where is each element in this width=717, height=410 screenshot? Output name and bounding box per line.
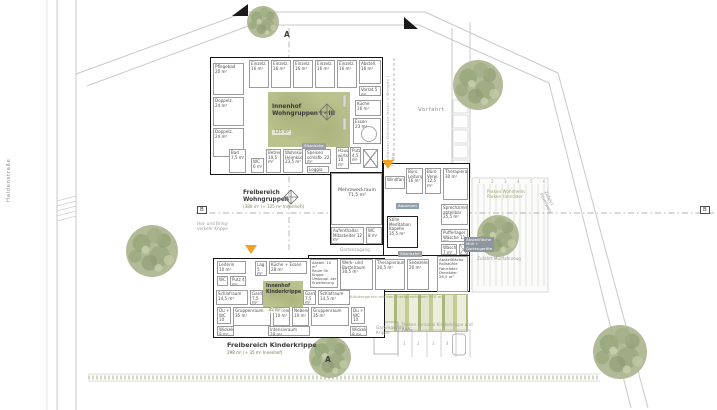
stall-number: 1 bbox=[403, 341, 406, 346]
floorplan-room: Wickeln 8 m² bbox=[350, 326, 367, 336]
floorplan-room: Abstellfläche Rollstühle Fahrräder Dreir… bbox=[437, 256, 468, 292]
stall-number: 4 bbox=[517, 179, 520, 184]
floorplan-room: Wäschekl. 7 m² bbox=[441, 244, 457, 255]
floorplan-room: Therapieraum 30,5 m² bbox=[375, 259, 405, 290]
aquarium-chip: Aquarium bbox=[396, 203, 419, 209]
floorplan-room: Aufenthaltsr. Mitarbeiter 12 m² bbox=[331, 227, 364, 244]
floorplan-room: Putz 4,5 m² bbox=[350, 147, 361, 164]
floorplan-room: Gard. 7,5 m² bbox=[250, 290, 263, 305]
section-marker-a-top: A bbox=[284, 30, 290, 39]
kraeutergarten-label: Kräutergarten mit den Therapiebäumen 970… bbox=[350, 295, 443, 300]
area-size: 298 m² (+ 35 m² Innenhof) bbox=[227, 350, 317, 355]
gartengeraete-label: Gartengeräte Krippe bbox=[376, 325, 404, 336]
sitznische-chip: Sitznische bbox=[398, 251, 422, 257]
parken-personal-label: Parken Personal Kinderkrippe und AWG bbox=[402, 322, 473, 333]
parken-wohnheim-label: Parken Wohnheim Parken Fahrräder bbox=[487, 189, 525, 200]
freibereich-wohngruppen-label: Freibereich Wohngruppen (380 m² (+ 125 m… bbox=[243, 190, 304, 209]
floorplan-room: Windfang bbox=[385, 176, 405, 189]
muellzufahrt-label: Zufahrt Müllfahrzeug bbox=[477, 256, 521, 261]
floorplan-room: Therapieraum 30 m² bbox=[443, 168, 468, 200]
floorplan-room: Intensivraum 28 m² bbox=[268, 326, 310, 336]
floorplan-room: Leiterin 10 m² bbox=[217, 261, 246, 274]
floorplan-room: Pflegebad 20 m² bbox=[213, 63, 244, 95]
floorplan-room: Loggia 10 m² bbox=[307, 166, 329, 173]
floorplan-room: Betreuer 10,5 m² bbox=[266, 149, 281, 173]
innenhof-kinderkrippe-label: Innenhof Kinderkrippe 35 m² bbox=[266, 284, 301, 315]
floorplan-room: WC bbox=[217, 276, 228, 286]
floorplan-room: Schlafraum 14,5 m² bbox=[216, 290, 248, 305]
floorplan-room: Du + WC 10 m² bbox=[217, 307, 231, 324]
innenhof-wohngruppen-label: Innenhof Wohngruppen I - III 125 m² bbox=[272, 104, 335, 137]
area-size-chip: 125 m² bbox=[272, 130, 291, 135]
area-title: Innenhof Wohngruppen I - III bbox=[272, 104, 335, 118]
area-title: Freibereich Kinderkrippe bbox=[227, 342, 317, 350]
floorplan-room: Gard. 7,5 m² bbox=[303, 290, 316, 305]
stall-number: 3 bbox=[504, 179, 507, 184]
floorplan-room: Gruppenraum 35 m² bbox=[311, 307, 349, 326]
floorplan-room: Küche 16 m² bbox=[355, 100, 381, 116]
hol-bring-label: Hol- und Bring- verkehr Krippe bbox=[197, 221, 229, 232]
stall-number: 4 bbox=[446, 341, 449, 346]
floorplan-room: Sprechzimmer abteilbar 25,5 m² bbox=[441, 204, 468, 225]
floorplan-room: Schlafraum 14,5 m² bbox=[318, 290, 350, 305]
shaft-cross-icon bbox=[363, 149, 378, 168]
kleinbusse-label: Stellflächen Kleinbusse Holen + Bringen … bbox=[385, 72, 395, 167]
floorplan-room: Einzelz. 16 m² bbox=[315, 60, 335, 88]
floorplan-room: WC 6 m² bbox=[251, 158, 264, 173]
area-title: Freibereich Wohngruppen bbox=[243, 190, 304, 204]
area-size: (380 m² (+ 125 m² Innenhof)) bbox=[243, 204, 304, 209]
floorplan-room: Abstell. 16 m² bbox=[359, 60, 381, 84]
floorplan-room: Einzelz. 16 m² bbox=[249, 60, 269, 88]
floorplan-room: Putz 4 m² bbox=[230, 276, 246, 286]
floorplan-room: Büro Leitung 16 m² bbox=[406, 168, 423, 194]
floorplan-room: WC 8 m² bbox=[366, 227, 382, 244]
abstellflaeche-muell-chip: Abstellfläche Müll + Gartengeräte bbox=[464, 237, 494, 252]
street-haldenstrasse-label: Haldenstraße bbox=[6, 130, 12, 202]
sitznische-chip: Sitznische bbox=[302, 143, 326, 149]
gartenzugang-label: Gartenzugang bbox=[340, 247, 370, 252]
floorplan-room: Einzelz. 16 m² bbox=[271, 60, 291, 88]
floorplan-room: Bad 7,5 m² bbox=[229, 149, 246, 173]
stall-number: 2 bbox=[491, 179, 494, 184]
floorplan-room: Snoezelen 20 m² bbox=[407, 259, 429, 290]
floorplan-room: Speisen schlafb. 22 m² bbox=[305, 149, 331, 164]
stall-number: 1 bbox=[478, 179, 481, 184]
floorplan-room: Doppelz. 24 m² bbox=[213, 97, 244, 126]
floorplan-room: Mehrzweckraum 71,5 m² bbox=[331, 173, 382, 225]
floorplan-room: Lag. 5 m² bbox=[255, 261, 267, 276]
site-plan: Pflegebad 20 m² Doppelz. 24 m² Doppelz. … bbox=[0, 0, 717, 410]
floorplan-room: Vorrat 5 m² bbox=[359, 86, 381, 96]
floorplan-room: Küche + Essen 28 m² bbox=[269, 261, 307, 274]
floorplan-room: Werk- und Bastelraum 30,5 m² bbox=[340, 259, 373, 290]
vorfahrt-label: Vorfahrt bbox=[418, 107, 445, 113]
crosswalk-hatch bbox=[57, 196, 76, 221]
floorplan-room: Wohnküche Heimküche 23,5 m² bbox=[283, 149, 303, 173]
stall-number: 6 bbox=[543, 179, 546, 184]
area-size-chip: 35 m² bbox=[266, 308, 283, 313]
freibereich-kinderkrippe-label: Freibereich Kinderkrippe 298 m² (+ 35 m²… bbox=[227, 342, 317, 355]
section-marker-b-left: B bbox=[197, 206, 207, 214]
section-marker-a-bottom: A bbox=[325, 355, 331, 364]
stall-number: 5 bbox=[530, 179, 533, 184]
stall-number: 2 bbox=[417, 341, 420, 346]
floorplan-room: Büro Verw. 12,5 m² bbox=[425, 168, 441, 194]
floorplan-room: Stille Meditation Kapelle 35,5 m² bbox=[387, 216, 418, 248]
floorplan-room: Hausw. wirts. 10 m² bbox=[336, 147, 349, 169]
stall-number: 3 bbox=[432, 341, 435, 346]
floorplan-room: Wickeln 8 m² bbox=[217, 326, 234, 336]
floorplan-room: Abstell. 10 m² Raum für Krippe Umbaupl. … bbox=[310, 259, 338, 288]
floorplan-room: Einzelz. 16 m² bbox=[337, 60, 357, 88]
floorplan-room: Du + WC 10 m² bbox=[351, 307, 365, 324]
round-table-icon bbox=[361, 126, 377, 142]
section-marker-b-right: B bbox=[700, 206, 710, 214]
floorplan-room: Einzelz. 16 m² bbox=[293, 60, 313, 88]
area-title: Innenhof Kinderkrippe bbox=[266, 284, 301, 296]
